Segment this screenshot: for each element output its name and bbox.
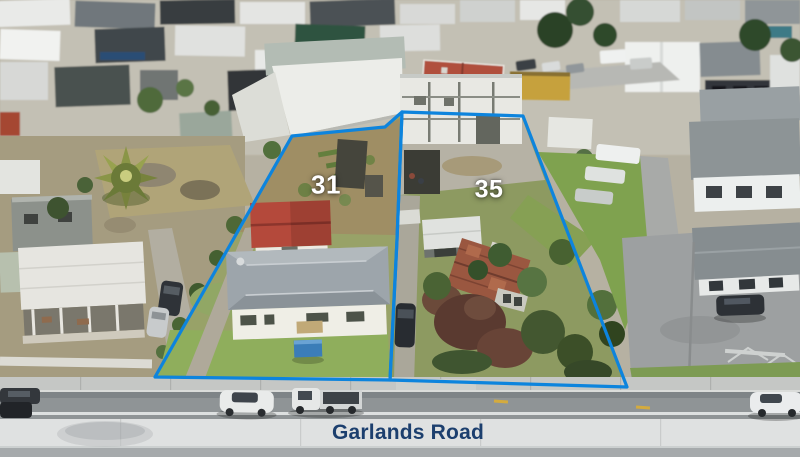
- white-house-lot31: [226, 246, 391, 340]
- road-name-label: Garlands Road: [332, 421, 484, 445]
- lot-35-label: 35: [475, 176, 504, 205]
- road: [0, 377, 800, 457]
- white-villa: [18, 241, 148, 343]
- white-ute: [288, 388, 364, 418]
- parked-suv-lot35: [394, 303, 416, 348]
- parked-car-dark: [714, 294, 766, 323]
- aerial-photo-canvas: [0, 0, 800, 457]
- white-car-right: [748, 392, 800, 421]
- palm-tree: [94, 146, 158, 210]
- blue-bin: [292, 340, 324, 364]
- industrial-structure: [400, 74, 522, 144]
- aerial-photo: 31 35 Garlands Road: [0, 0, 800, 457]
- parked-car-silver: [146, 306, 170, 338]
- moving-car-blurred: [57, 421, 153, 447]
- grey-roof-house-right: [692, 222, 800, 296]
- white-hatchback: [216, 390, 276, 420]
- lot-31-label: 31: [311, 170, 341, 201]
